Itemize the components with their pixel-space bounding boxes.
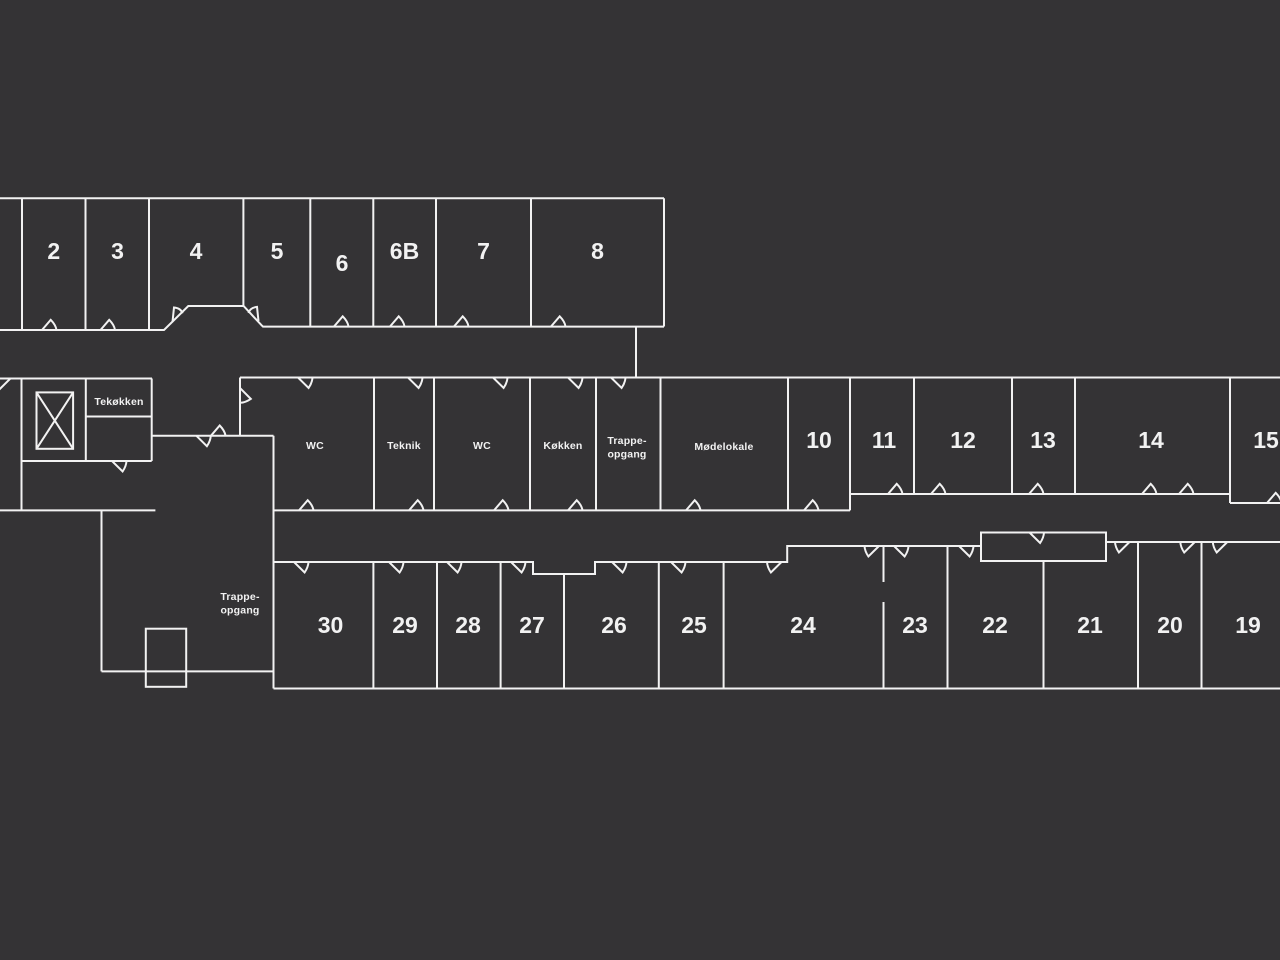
svg-text:Køkken: Køkken: [543, 440, 582, 452]
svg-text:20: 20: [1157, 612, 1183, 638]
svg-text:27: 27: [519, 612, 545, 638]
svg-text:26: 26: [601, 612, 627, 638]
svg-text:2: 2: [47, 238, 60, 264]
svg-text:19: 19: [1235, 612, 1261, 638]
svg-text:23: 23: [902, 612, 928, 638]
svg-text:25: 25: [681, 612, 707, 638]
svg-text:13: 13: [1030, 427, 1056, 453]
svg-text:Teknik: Teknik: [387, 440, 421, 452]
svg-text:5: 5: [271, 238, 284, 264]
svg-text:11: 11: [872, 427, 897, 453]
svg-text:WC: WC: [306, 440, 324, 452]
svg-text:10: 10: [806, 427, 832, 453]
svg-text:28: 28: [455, 612, 481, 638]
svg-text:WC: WC: [473, 440, 491, 452]
svg-text:7: 7: [477, 238, 490, 264]
svg-text:24: 24: [790, 612, 816, 638]
svg-text:29: 29: [392, 612, 418, 638]
svg-text:Mødelokale: Mødelokale: [694, 441, 753, 453]
svg-text:22: 22: [982, 612, 1008, 638]
svg-text:4: 4: [190, 238, 203, 264]
svg-text:Tekøkken: Tekøkken: [94, 396, 143, 408]
svg-text:15: 15: [1253, 427, 1279, 453]
svg-text:opgang: opgang: [220, 605, 259, 617]
svg-text:14: 14: [1138, 427, 1164, 453]
svg-text:6: 6: [336, 250, 349, 276]
svg-text:30: 30: [318, 612, 344, 638]
svg-text:opgang: opgang: [607, 449, 646, 461]
svg-text:21: 21: [1077, 612, 1103, 638]
svg-text:6B: 6B: [390, 238, 419, 264]
svg-text:8: 8: [591, 238, 604, 264]
svg-text:3: 3: [111, 238, 124, 264]
svg-text:Trappe-: Trappe-: [220, 591, 260, 603]
svg-text:12: 12: [950, 427, 976, 453]
svg-text:Trappe-: Trappe-: [607, 435, 647, 447]
